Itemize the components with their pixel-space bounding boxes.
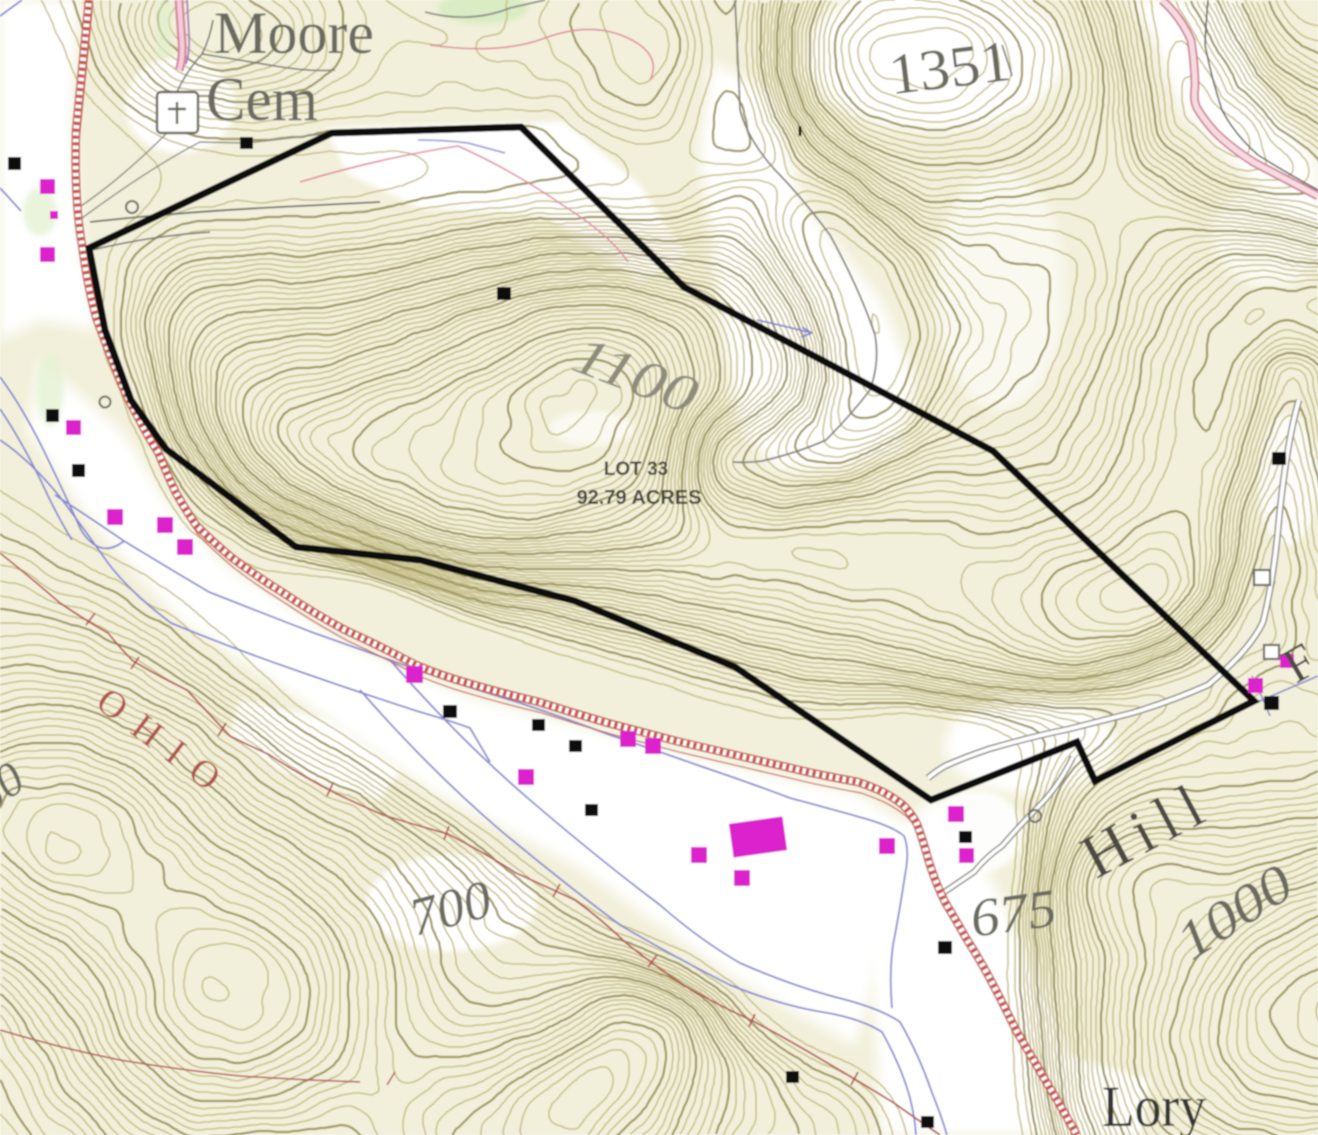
- svg-text:LOT 33: LOT 33: [604, 459, 668, 480]
- svg-text:675: 675: [967, 877, 1061, 948]
- svg-text:Cem: Cem: [206, 66, 318, 134]
- svg-text:Moore: Moore: [214, 0, 374, 66]
- svg-text:Lory: Lory: [1102, 1074, 1206, 1135]
- svg-text:92.79 ACRES: 92.79 ACRES: [577, 487, 702, 509]
